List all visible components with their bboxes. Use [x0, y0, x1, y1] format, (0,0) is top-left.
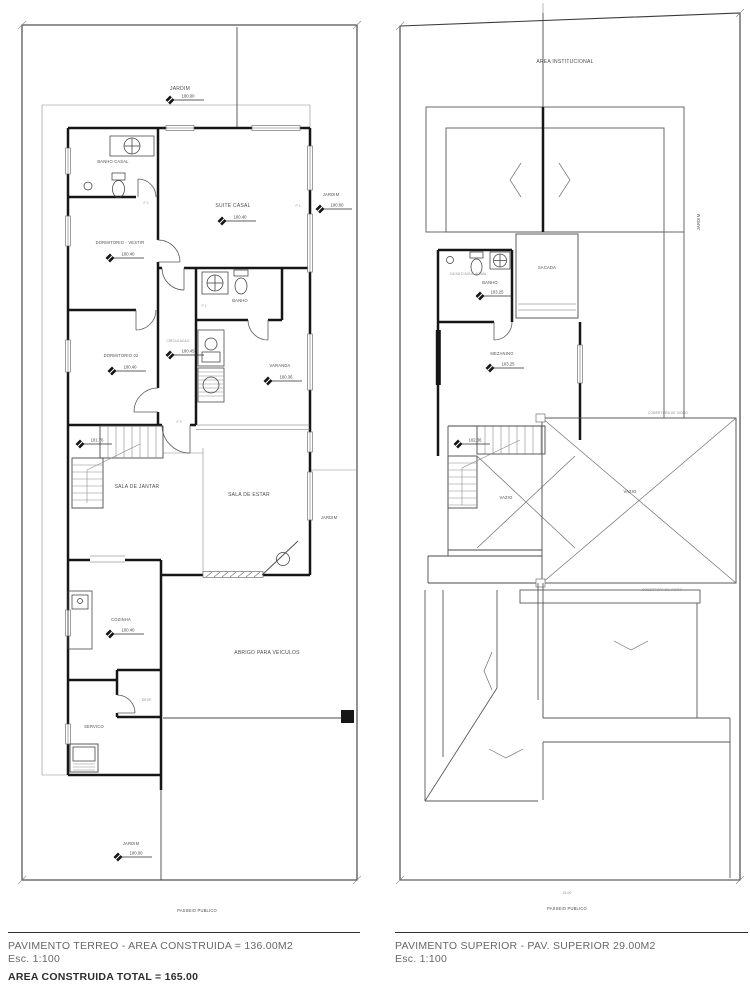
room-label-abrigo: ABRIGO PARA VEICULOS	[234, 650, 300, 656]
cobertura-de-vidro-area	[536, 414, 736, 587]
ground-stairs	[72, 426, 163, 508]
upper-caption-title: PAVIMENTO SUPERIOR - PAV. SUPERIOR 29.00…	[395, 940, 748, 953]
room-level-banho-superior: 103.25	[491, 290, 504, 295]
room-label-varanda: VARANDA	[270, 363, 291, 368]
cozinha-fixtures	[68, 591, 92, 649]
fireplace-corner	[262, 541, 298, 575]
upper-roof-top	[426, 107, 684, 418]
room-level-jardim-bottom: 100.00	[130, 851, 143, 856]
room-label-sala-jantar: SALA DE JANTAR	[115, 484, 160, 490]
room-level-jardim-right: 100.00	[331, 203, 344, 208]
vazio-esquerdo-cross	[477, 456, 575, 548]
vazio-direito-label: VAZIO	[624, 489, 637, 494]
room-level-dormitorio-vestir: 100.40	[122, 252, 135, 257]
upper-stairs	[448, 426, 545, 508]
door-tag-p2: P 2	[143, 201, 148, 205]
room-label-dormitorio-02: DORMITORIO 02	[104, 353, 139, 358]
cobertura-vidro-label-2: COBERTURA DE VIDRO	[642, 588, 682, 592]
door-tag-p1: P 1	[201, 304, 206, 308]
dim-frente-label: 15.00	[562, 891, 571, 895]
room-level-mezanino: 103.25	[502, 362, 515, 367]
level-escada-superior: 102.36	[469, 438, 482, 443]
ground-caption-title: PAVIMENTO TERREO - AREA CONSTRUIDA = 136…	[8, 940, 360, 953]
banho-social-fixtures	[202, 270, 248, 294]
room-level-varanda: 100.36	[280, 375, 293, 380]
room-level-dormitorio-02: 100.40	[124, 365, 137, 370]
room-label-banho-superior: BANHO	[482, 280, 498, 285]
upper-roofs-bottom	[425, 583, 730, 878]
cobertura-vidro-label-1: COBERTURA DE VIDRO	[648, 411, 688, 415]
room-level-jardim-top: 100.00	[182, 94, 195, 99]
garage-column	[341, 710, 354, 723]
passeio-publico-label-right: PASSEIO PUBLICO	[547, 906, 587, 911]
sliding-door-sill	[203, 572, 263, 578]
room-label-circulacao: CIRCULACAO	[166, 339, 189, 343]
caption-upper-floor: PAVIMENTO SUPERIOR - PAV. SUPERIOR 29.00…	[395, 932, 748, 966]
room-label-banho-casal: BANHO CASAL	[97, 159, 129, 164]
room-label-sacada: SACADA	[538, 265, 556, 270]
room-label-mezanino: MEZANINO	[490, 351, 513, 356]
level-escada-terreo: 101.76	[91, 438, 104, 443]
room-label-suite-casal: SUITE CASAL	[215, 203, 250, 209]
room-level-circulacao: 100.45	[182, 349, 195, 354]
ground-doors	[117, 179, 268, 713]
caption-rule-right	[395, 932, 748, 933]
drawing-sheet: JARDIM 100.00 BANHO CASAL SUITE CASAL 10…	[0, 0, 750, 1000]
upper-walls	[428, 234, 582, 583]
ground-floor-plan: JARDIM 100.00 BANHO CASAL SUITE CASAL 10…	[18, 21, 361, 913]
room-level-suite-casal: 100.40	[234, 215, 247, 220]
banho-casal-fixtures	[84, 136, 154, 198]
room-label-servico: SERVICO	[84, 724, 104, 729]
caption-ground-floor: PAVIMENTO TERREO - AREA CONSTRUIDA = 136…	[8, 932, 360, 983]
room-label-jardim-top: JARDIM	[170, 86, 190, 92]
area-institucional-label: AREA INSTITUCIONAL	[536, 59, 593, 65]
upper-floor-plan: AREA INSTITUCIONAL JARDIM CAIXA D'AGUA A…	[396, 3, 744, 911]
room-label-desp: DESP.	[142, 698, 152, 702]
room-label-jardim-bottom: JARDIM	[123, 841, 140, 846]
servico-tank-fixture	[70, 744, 98, 772]
room-label-jardim-right: JARDIM	[323, 192, 340, 197]
room-label-banho-social: BANHO	[232, 298, 248, 303]
vazio-esquerdo-label: VAZIO	[500, 495, 513, 500]
total-area-caption: AREA CONSTRUIDA TOTAL = 165.00	[8, 971, 360, 983]
caption-rule-left	[8, 932, 360, 933]
room-level-cozinha: 100.40	[122, 628, 135, 633]
upper-caption-scale: Esc. 1:100	[395, 953, 748, 966]
room-label-jardim-mid: JARDIM	[321, 515, 338, 520]
door-tag-p3: P 3	[176, 420, 181, 424]
varanda-grill-fixtures	[198, 330, 224, 402]
jardim-side-label: JARDIM	[696, 213, 701, 230]
caixa-dagua-label: CAIXA D'AGUA ACIMA	[450, 272, 487, 276]
sacada-walls	[516, 234, 578, 318]
room-label-sala-estar: SALA DE ESTAR	[228, 492, 270, 498]
passeio-publico-label-left: PASSEIO PUBLICO	[177, 908, 217, 913]
room-label-dormitorio-vestir: DORMITORIO - VESTIR	[96, 240, 145, 245]
room-label-cozinha: COZINHA	[111, 617, 131, 622]
floor-plan-drawing: JARDIM 100.00 BANHO CASAL SUITE CASAL 10…	[0, 0, 750, 1000]
ground-caption-scale: Esc. 1:100	[8, 953, 360, 966]
door-tag-p4: P 4	[295, 204, 300, 208]
